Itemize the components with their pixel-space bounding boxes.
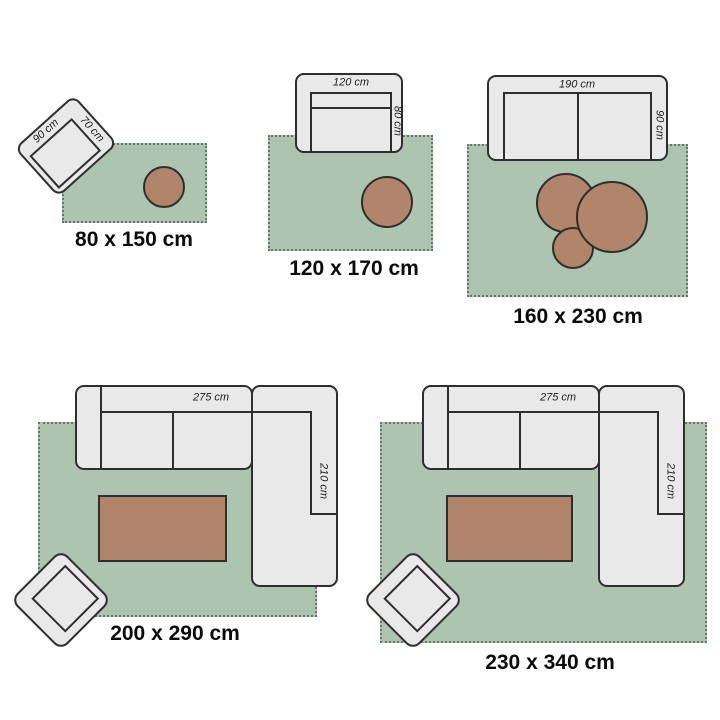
size-label: 230 x 340 cm — [485, 651, 615, 674]
sofa-width-label: 275 cm — [540, 393, 576, 404]
size-option-230x340: 275 cm 210 cm 230 x 340 cm — [0, 0, 720, 720]
sofa-armrest-line — [447, 387, 449, 468]
coffee-table — [446, 495, 573, 562]
sofa-backrest-line — [447, 411, 658, 413]
chaise-backrest-end-line — [657, 513, 683, 515]
sofa-depth-label: 210 cm — [665, 463, 676, 499]
rug-size-guide: 90 cm 70 cm 80 x 150 cm 120 cm 80 cm 120… — [0, 0, 720, 720]
chaise-backrest-line — [657, 411, 659, 515]
sofa-cushion-divider-line — [519, 413, 521, 468]
